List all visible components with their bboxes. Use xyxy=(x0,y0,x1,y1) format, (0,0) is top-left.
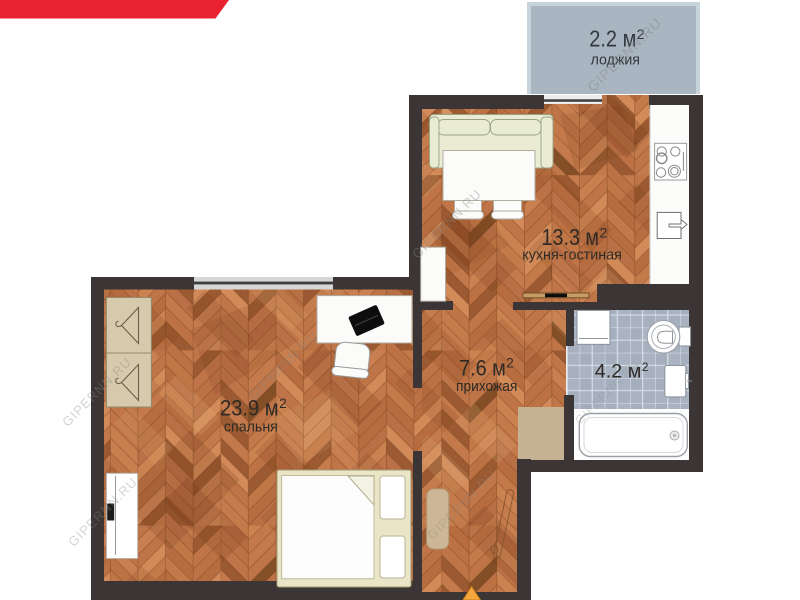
svg-text:2: 2 xyxy=(506,356,514,371)
svg-text:2: 2 xyxy=(279,396,287,411)
svg-text:2: 2 xyxy=(642,360,649,374)
svg-text:кухня-гостиная: кухня-гостиная xyxy=(522,246,622,263)
svg-text:спальня: спальня xyxy=(224,419,278,436)
svg-text:7.6 м: 7.6 м xyxy=(459,355,506,380)
svg-text:прихожая: прихожая xyxy=(456,378,517,395)
svg-text:23.9 м: 23.9 м xyxy=(220,396,279,421)
svg-text:2: 2 xyxy=(600,224,608,240)
